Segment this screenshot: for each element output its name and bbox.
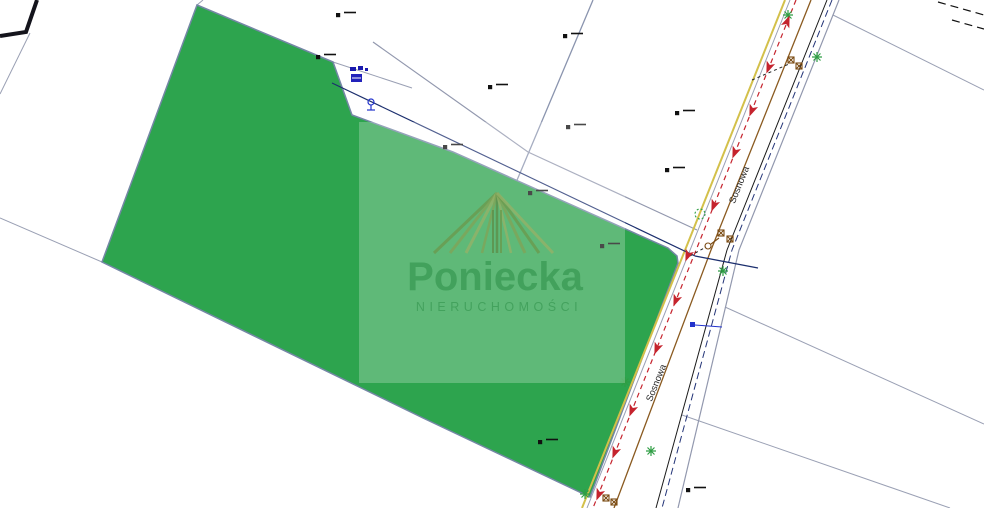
street-label-1: Sosnowa bbox=[727, 164, 752, 205]
survey-dash-icon bbox=[317, 55, 336, 59]
survey-dash-icon bbox=[337, 13, 356, 17]
notch-boundary bbox=[333, 62, 412, 88]
survey-dash-icon bbox=[676, 111, 695, 115]
watermark-subtitle: NIERUCHOMOŚCI bbox=[416, 299, 582, 314]
flow-arrow-icon bbox=[728, 146, 741, 160]
cadastral-map[interactable]: Sosnowa Sosnowa bbox=[0, 0, 984, 508]
dashed-boundary-2 bbox=[952, 20, 984, 29]
utility-pole-icon bbox=[718, 230, 724, 236]
boundary-east-top bbox=[833, 15, 984, 90]
flow-arrow-icon bbox=[745, 104, 758, 118]
boundary-east-bottom bbox=[682, 415, 950, 508]
vegetation-star-icon bbox=[812, 52, 822, 62]
vegetation-star-icon bbox=[580, 489, 590, 499]
map-canvas[interactable]: Sosnowa Sosnowa bbox=[0, 0, 984, 508]
vegetation-star-icon bbox=[646, 446, 656, 456]
boundary-east-mid bbox=[725, 307, 984, 424]
flow-arrow-icon bbox=[669, 294, 682, 308]
hydrant-icon bbox=[350, 66, 368, 82]
watermark: Poniecka NIERUCHOMOŚCI bbox=[359, 122, 625, 383]
boundary-top-left bbox=[0, 33, 30, 94]
boundary-apex bbox=[197, 0, 203, 5]
pole-circle-icon bbox=[705, 243, 711, 249]
vegetation-star-icon bbox=[718, 266, 728, 276]
utility-pole-icon bbox=[788, 57, 794, 63]
flow-arrow-icon bbox=[608, 446, 621, 460]
survey-dash-icon bbox=[564, 34, 583, 38]
crossing-dashed-mid bbox=[690, 247, 706, 256]
boundary-west bbox=[0, 218, 102, 262]
street-label-2: Sosnowa bbox=[644, 362, 669, 403]
survey-dash-icon bbox=[666, 168, 685, 172]
flow-arrow-icon bbox=[625, 404, 638, 418]
utility-pole-icon bbox=[603, 495, 609, 501]
road-east-boundary bbox=[678, 0, 839, 508]
watermark-brand: Poniecka bbox=[407, 255, 583, 299]
valve-icon bbox=[367, 99, 375, 110]
flow-arrow-icon bbox=[707, 199, 720, 213]
survey-dash-icon bbox=[489, 85, 508, 89]
road-edge-top-left bbox=[0, 0, 37, 36]
survey-dash-icon bbox=[687, 488, 706, 492]
utility-pole-icon bbox=[727, 236, 733, 242]
dashed-boundary-1 bbox=[938, 2, 984, 15]
